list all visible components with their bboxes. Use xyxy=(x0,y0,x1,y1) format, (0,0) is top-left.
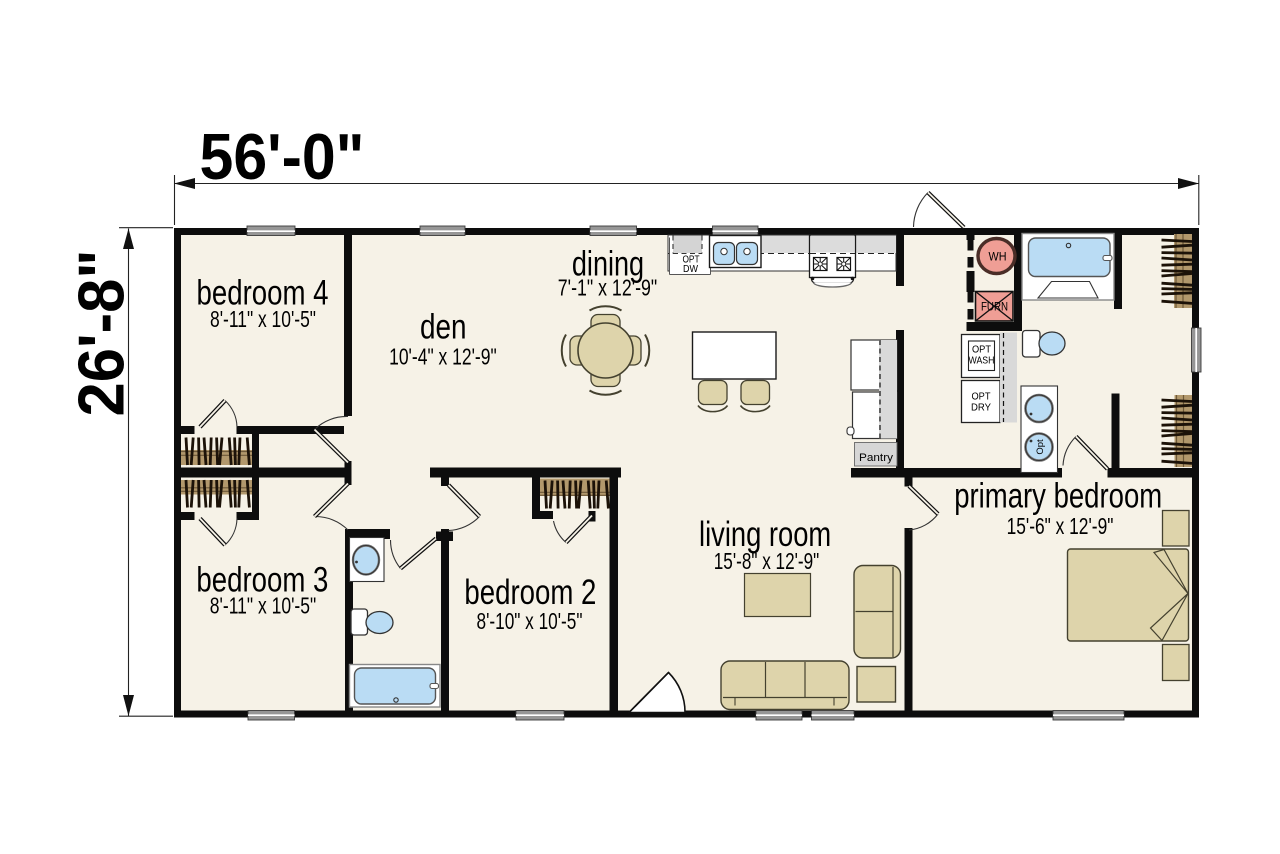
svg-text:den: den xyxy=(420,308,467,347)
svg-text:26'-8": 26'-8" xyxy=(65,250,138,417)
svg-text:10'-4" x 12'-9": 10'-4" x 12'-9" xyxy=(389,344,497,370)
svg-text:8'-10" x 10'-5": 8'-10" x 10'-5" xyxy=(477,608,583,634)
svg-text:DRY: DRY xyxy=(971,403,991,414)
svg-text:bedroom 2: bedroom 2 xyxy=(464,573,596,612)
svg-text:8'-11" x 10'-5": 8'-11" x 10'-5" xyxy=(210,593,316,619)
svg-text:DW: DW xyxy=(683,264,698,275)
svg-text:15'-6" x 12'-9": 15'-6" x 12'-9" xyxy=(1007,513,1114,539)
svg-text:Pantry: Pantry xyxy=(859,452,894,464)
svg-text:primary bedroom: primary bedroom xyxy=(954,477,1162,516)
svg-text:8'-11" x 10'-5": 8'-11" x 10'-5" xyxy=(210,306,316,332)
svg-text:OPT: OPT xyxy=(972,345,991,356)
svg-text:Opt: Opt xyxy=(1035,439,1046,455)
svg-text:WASH: WASH xyxy=(969,356,995,367)
svg-text:WH: WH xyxy=(989,252,1007,264)
svg-text:7'-1" x 12'-9": 7'-1" x 12'-9" xyxy=(558,275,657,301)
svg-text:56'-0": 56'-0" xyxy=(200,120,365,193)
svg-text:OPT: OPT xyxy=(972,392,991,403)
svg-text:FURN: FURN xyxy=(981,302,1008,314)
svg-text:15'-8" x 12'-9": 15'-8" x 12'-9" xyxy=(714,548,820,574)
